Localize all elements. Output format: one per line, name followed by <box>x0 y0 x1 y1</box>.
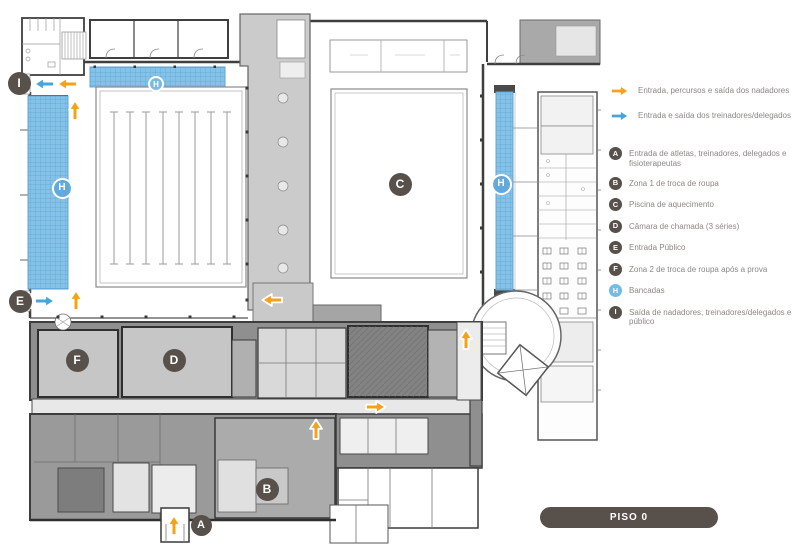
swimmer-flow-arrow-up-icon <box>165 513 183 537</box>
plan-marker-a: A <box>191 515 212 536</box>
legend-label: Bancadas <box>629 284 665 296</box>
swimmer-flow-arrow-left-icon <box>260 291 284 309</box>
legend-label: Entrada, percursos e saída dos nadadores <box>638 86 789 96</box>
floor-plan <box>0 0 610 551</box>
legend-label: Piscina de aquecimento <box>629 198 714 210</box>
orange-arrow-icon <box>609 83 631 99</box>
central-corridor <box>240 14 310 310</box>
legend-marker-f: F <box>609 263 622 276</box>
swimmer-flow-arrow-up-icon <box>66 98 84 122</box>
coach-flow-arrow-right-icon <box>33 292 57 310</box>
swimmer-flow-arrow-up-icon <box>457 327 475 351</box>
top-right-block <box>487 20 600 64</box>
marker-letter: H <box>497 179 504 189</box>
floor-badge: PISO 0 <box>540 507 718 528</box>
floor-badge-label: PISO 0 <box>610 512 648 523</box>
legend-marker-e: E <box>609 241 622 254</box>
legend-item-c: C Piscina de aquecimento <box>609 198 795 211</box>
legend-label: Câmara de chamada (3 séries) <box>629 220 739 232</box>
marker-letter: D <box>170 354 179 366</box>
legend-label: Entrada Público <box>629 241 685 253</box>
legend-flow-coaches: Entrada e saída dos treinadores/delegado… <box>609 108 795 124</box>
marker-letter: H <box>58 183 65 193</box>
legend-label: Zona 1 de troca de roupa <box>629 177 719 189</box>
competition-pool <box>96 87 246 287</box>
plan-marker-h-right: H <box>491 174 512 195</box>
legend-item-h: H Bancadas <box>609 284 795 297</box>
legend-label: Entrada de atletas, treinadores, delegad… <box>629 147 795 168</box>
marker-letter: A <box>197 520 205 531</box>
swimmer-flow-arrow-up-icon <box>67 288 85 312</box>
plan-marker-i: I <box>8 72 31 95</box>
service-strip <box>313 305 381 322</box>
bottom-wing <box>30 314 482 543</box>
marker-letter: H <box>153 80 159 89</box>
swimmer-flow-arrow-up-icon <box>307 417 325 441</box>
legend-marker-b: B <box>609 177 622 190</box>
coach-flow-arrow-left-icon <box>32 75 56 93</box>
plan-marker-h-top: H <box>148 76 164 92</box>
blue-arrow-icon <box>609 108 631 124</box>
legend-marker-h: H <box>609 284 622 297</box>
legend-item-d: D Câmara de chamada (3 séries) <box>609 220 795 233</box>
legend-item-f: F Zona 2 de troca de roupa após a prova <box>609 263 795 276</box>
legend-item-a: A Entrada de atletas, treinadores, deleg… <box>609 147 795 168</box>
legend-label: Zona 2 de troca de roupa após a prova <box>629 263 767 275</box>
marker-letter: C <box>396 178 405 190</box>
plan-marker-e: E <box>9 290 32 313</box>
floor-plan-page: I H H E F D C H B A Entrada, percursos e… <box>0 0 800 551</box>
swimmer-flow-arrow-right-icon <box>364 398 388 416</box>
legend-item-e: E Entrada Público <box>609 241 795 254</box>
marker-letter: B <box>263 483 272 495</box>
legend-label: Saída de nadadores, treinadores/delegado… <box>629 306 795 327</box>
plan-marker-c: C <box>389 173 412 196</box>
legend-flow-swimmers: Entrada, percursos e saída dos nadadores <box>609 83 795 99</box>
plan-marker-h-left: H <box>52 178 73 199</box>
legend-marker-c: C <box>609 198 622 211</box>
legend-marker-a: A <box>609 147 622 160</box>
legend-marker-d: D <box>609 220 622 233</box>
plan-marker-f: F <box>66 349 89 372</box>
legend-label: Entrada e saída dos treinadores/delegado… <box>638 111 791 121</box>
plan-marker-d: D <box>163 349 186 372</box>
legend-marker-i: I <box>609 306 622 319</box>
marker-letter: I <box>17 77 20 89</box>
marker-letter: F <box>73 354 80 366</box>
swimmer-flow-arrow-left-icon <box>55 75 79 93</box>
legend: Entrada, percursos e saída dos nadadores… <box>609 83 795 335</box>
marker-letter: E <box>16 295 24 307</box>
top-rooms <box>90 20 228 58</box>
plan-marker-b: B <box>256 478 279 501</box>
room-above-warmup <box>330 40 467 72</box>
staircase-top-left <box>62 32 86 59</box>
legend-item-b: B Zona 1 de troca de roupa <box>609 177 795 190</box>
legend-item-i: I Saída de nadadores, treinadores/delega… <box>609 306 795 327</box>
